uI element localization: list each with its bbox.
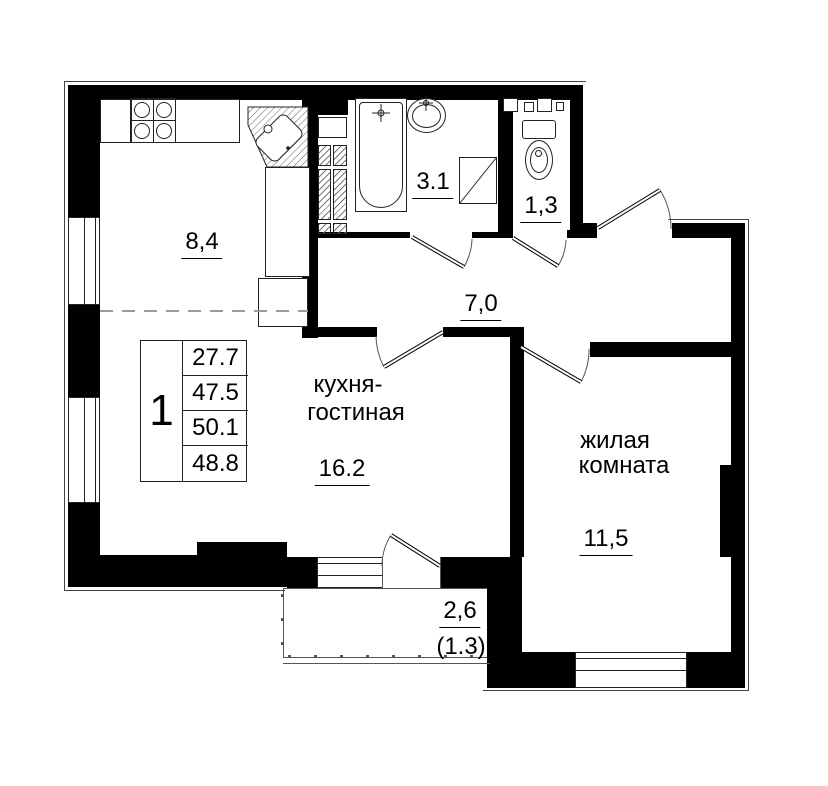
bathtub-faucet-icon — [372, 104, 390, 122]
living-door-arc — [581, 349, 589, 382]
balcony-door-arc — [382, 535, 391, 566]
unit-info-table: 1 27.7 47.5 50.1 48.8 — [140, 340, 247, 482]
unit-area-value: 48.8 — [183, 446, 248, 481]
hallway-area-label: 7,0 — [460, 292, 501, 316]
unit-number: 1 — [141, 341, 183, 481]
kitchen-living-area-label: 16.2 — [315, 457, 370, 481]
living-room-name: жилая — [580, 429, 650, 453]
kitchen-living-name: гостиная — [307, 401, 405, 425]
washing-machine-diagonal — [460, 158, 496, 203]
kitchen-door-arc — [376, 336, 384, 367]
unit-area-value: 47.5 — [183, 376, 248, 411]
kitchen-corner-sink — [248, 107, 308, 167]
toilet-area-label: 1,3 — [520, 194, 561, 218]
floor-plan: 1 27.7 47.5 50.1 48.8 8,4 3.1 1,3 7,0 ку… — [0, 0, 828, 786]
drain-icon — [286, 146, 290, 150]
doors-and-fixtures-overlay — [0, 0, 828, 786]
kitchen-zone-area-label: 8,4 — [181, 230, 222, 254]
sink-faucet-icon — [419, 95, 433, 111]
unit-area-value: 27.7 — [183, 341, 248, 376]
balcony-area-label: 2,6 — [439, 599, 480, 623]
kitchen-living-name: кухня- — [313, 373, 382, 397]
unit-area-value: 50.1 — [183, 411, 248, 446]
bathroom-door-arc — [464, 239, 472, 267]
living-room-name: комната — [579, 454, 670, 478]
toilet-door-arc — [558, 240, 566, 266]
faucet-icon — [264, 125, 272, 133]
entrance-door-arc — [660, 190, 671, 229]
balcony-reduced-area-label: (1.3) — [436, 635, 485, 659]
living-room-area-label: 11,5 — [580, 527, 633, 551]
bathroom-area-label: 3.1 — [412, 170, 453, 194]
